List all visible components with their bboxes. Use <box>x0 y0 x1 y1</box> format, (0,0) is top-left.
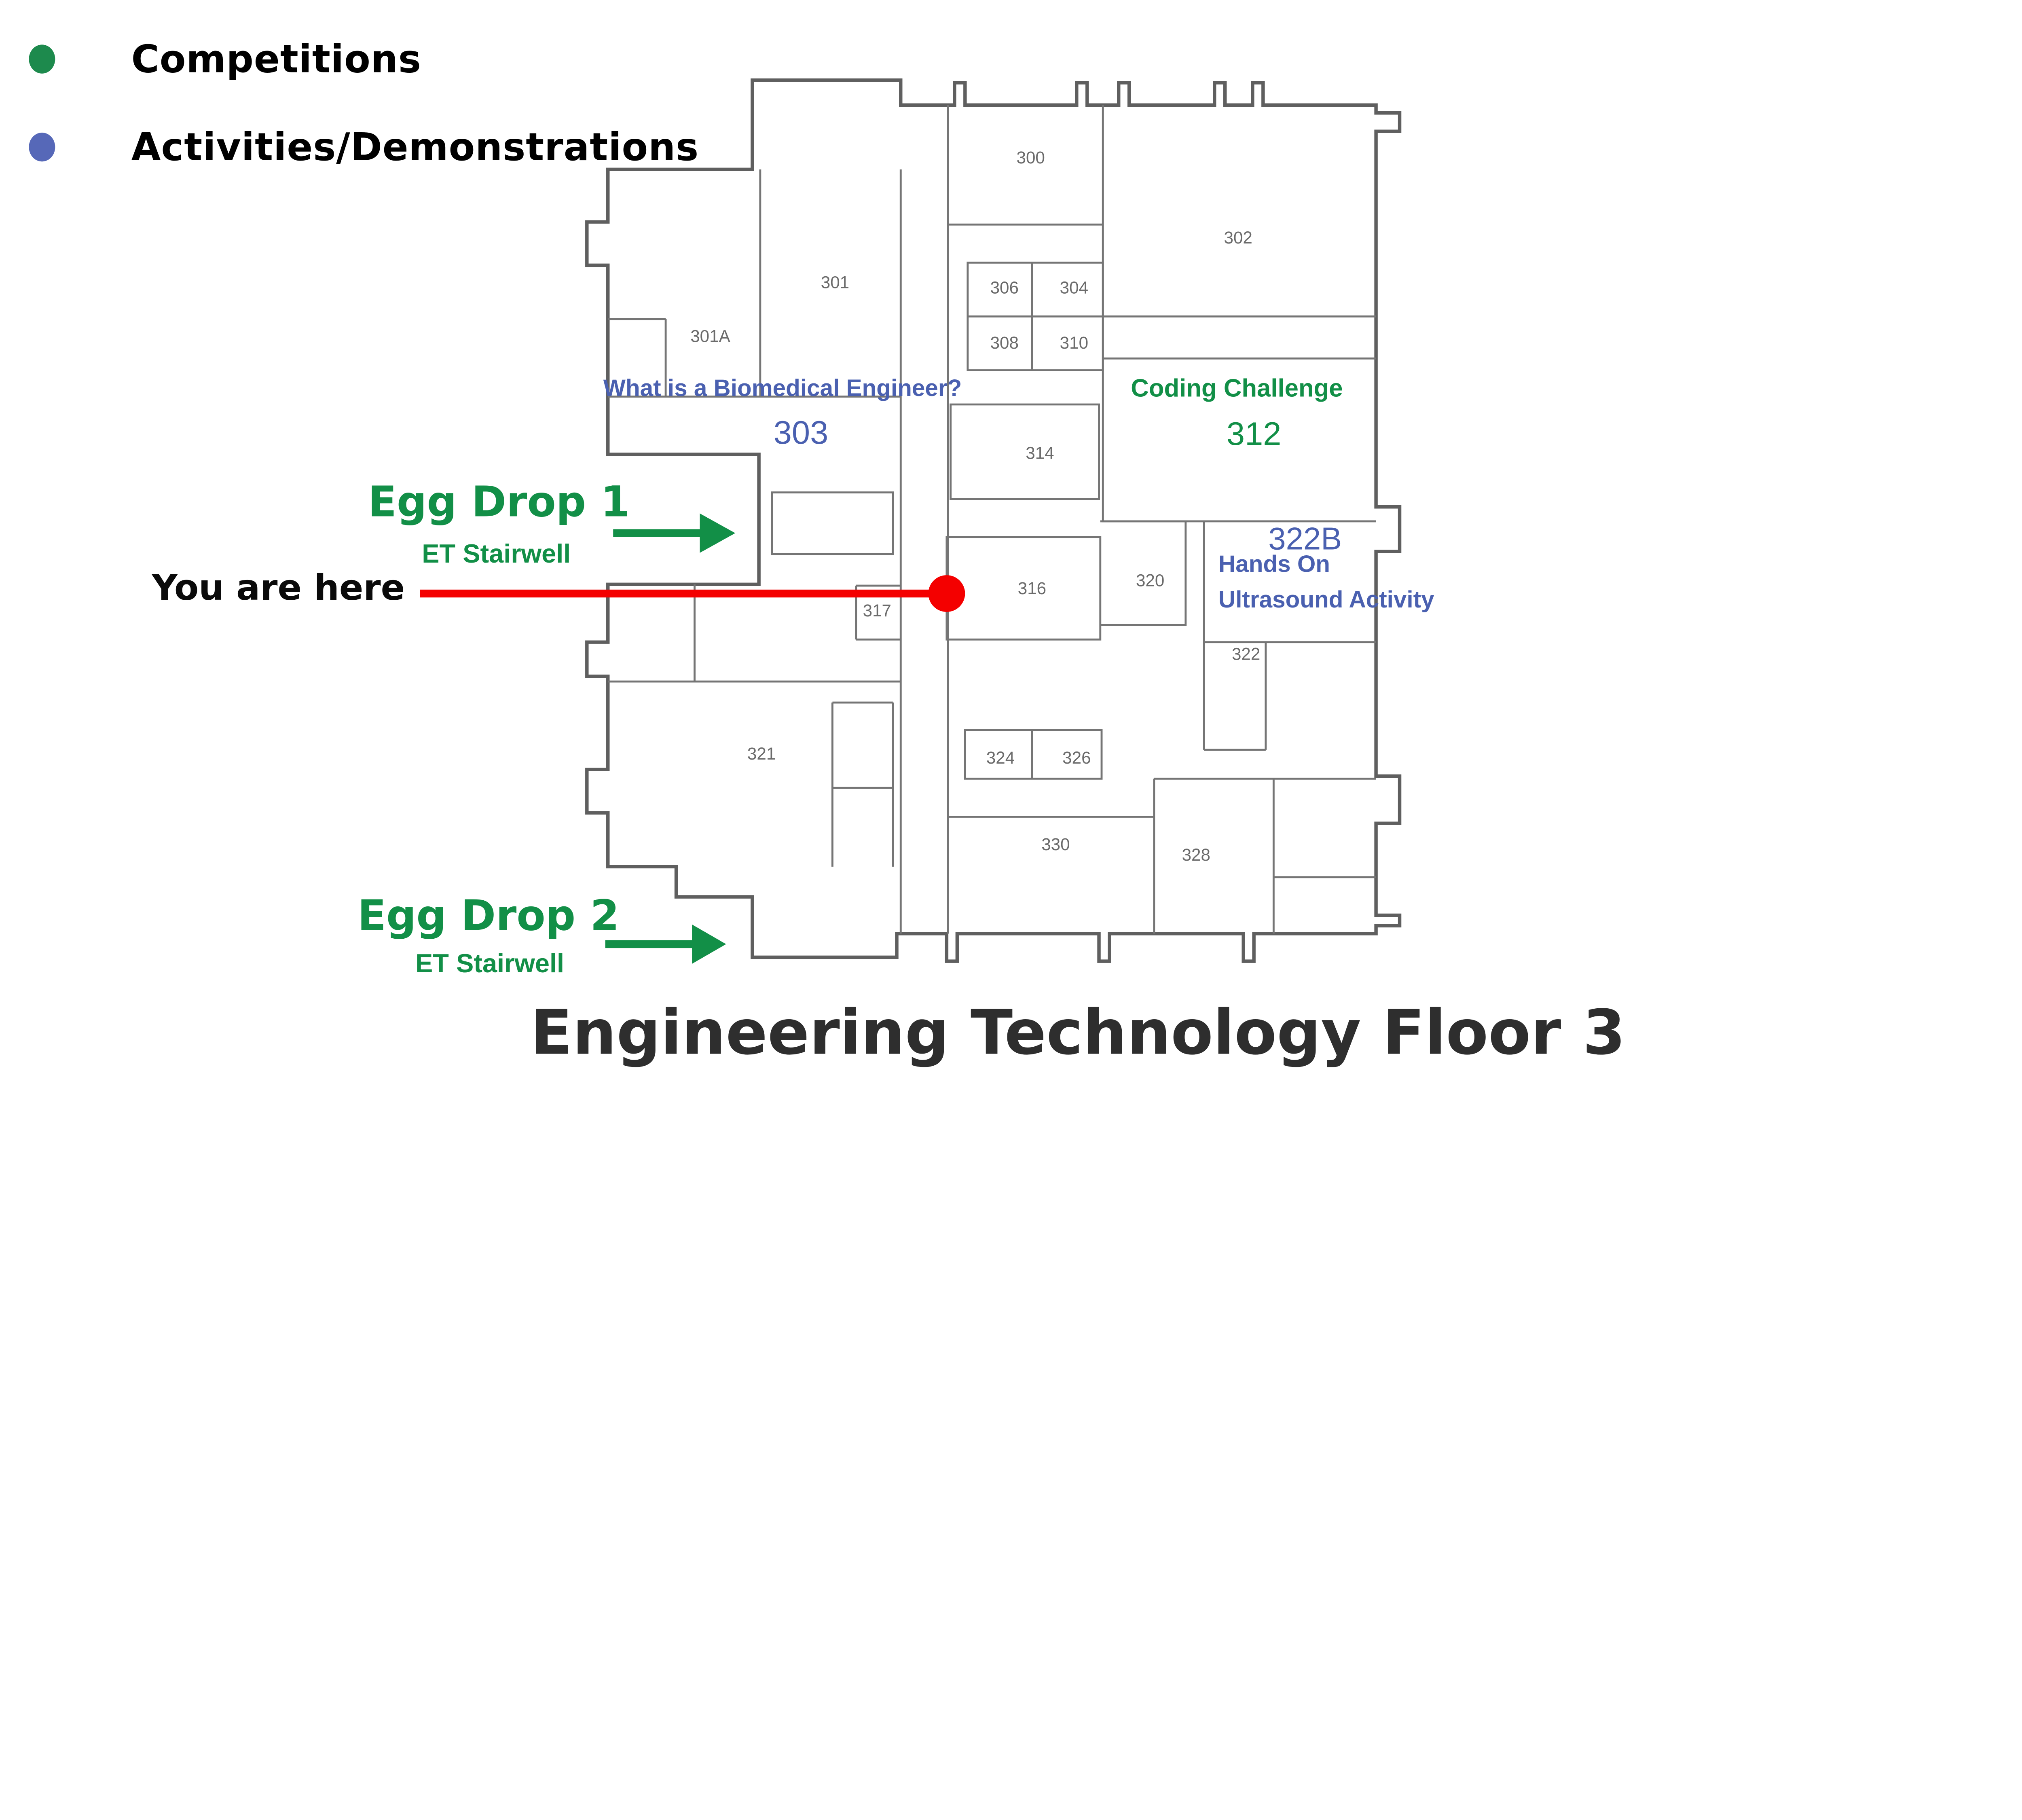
room-number-300: 300 <box>1017 148 1045 167</box>
interior-walls <box>608 105 1376 934</box>
label-biomedical-engineer: What is a Biomedical Engineer? <box>603 376 962 401</box>
room-number-317: 317 <box>863 601 891 620</box>
room-number-306: 306 <box>990 278 1019 297</box>
label-egg-drop-1: Egg Drop 1 <box>368 481 630 525</box>
label-et-stairwell-1: ET Stairwell <box>422 542 571 569</box>
label-room-312: 312 <box>1227 417 1281 452</box>
room-number-308: 308 <box>990 333 1019 352</box>
room-number-322: 322 <box>1232 644 1260 663</box>
label-et-stairwell-2: ET Stairwell <box>415 951 564 979</box>
egg-drop-1-arrow <box>613 513 735 552</box>
room-labels: 300301301A302306304308310314316317320322… <box>690 148 1260 864</box>
label-room-303: 303 <box>774 416 828 451</box>
room-number-321: 321 <box>747 744 776 763</box>
label-you-are-here: You are here <box>152 571 405 608</box>
room-number-304: 304 <box>1060 278 1088 297</box>
room-number-302: 302 <box>1224 228 1252 247</box>
room-number-314: 314 <box>1026 444 1054 463</box>
room-number-326: 326 <box>1062 748 1091 767</box>
room-number-310: 310 <box>1060 333 1088 352</box>
room-number-301: 301 <box>821 273 849 292</box>
room-number-328: 328 <box>1182 845 1210 864</box>
you-are-here-dot <box>928 575 965 612</box>
page-title: Engineering Technology Floor 3 <box>530 997 1625 1070</box>
room-number-330: 330 <box>1041 835 1070 854</box>
room-number-301A: 301A <box>690 327 730 346</box>
room-number-324: 324 <box>986 748 1015 767</box>
room-number-320: 320 <box>1136 571 1164 590</box>
label-hands-on: Hands On <box>1218 552 1330 577</box>
floor-map-slide: Competitions Activities/Demonstrations <box>0 0 2022 1137</box>
label-ultrasound-activity: Ultrasound Activity <box>1218 588 1434 612</box>
label-egg-drop-2: Egg Drop 2 <box>357 895 620 939</box>
label-coding-challenge: Coding Challenge <box>1131 377 1343 403</box>
egg-drop-2-arrow <box>605 925 726 964</box>
room-number-316: 316 <box>1018 579 1046 598</box>
you-are-here-line <box>420 590 940 597</box>
